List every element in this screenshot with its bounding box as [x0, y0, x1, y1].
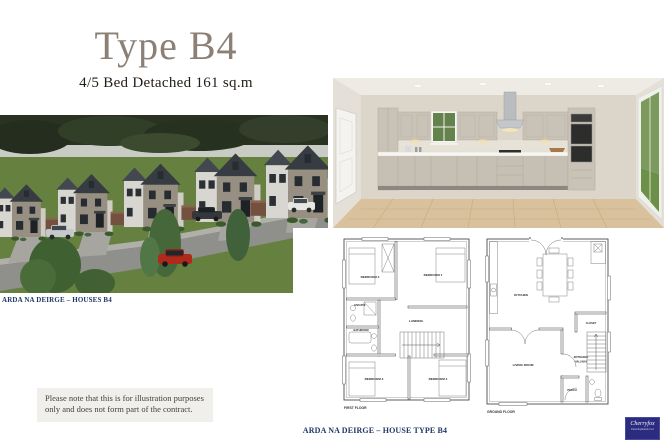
disclaimer-line1: Please note that this is for illustratio…	[45, 393, 213, 404]
room-label-entrance: ENTRANCE	[574, 355, 589, 359]
brochure-page: Type B4 4/5 Bed Detached 161 sq.m	[0, 0, 668, 445]
room-label-bedroom2: BEDROOM 2	[361, 275, 380, 279]
room-label-hallway: HALLWAY	[575, 360, 588, 364]
header: Type B4 4/5 Bed Detached 161 sq.m	[0, 24, 332, 92]
disclaimer-line2: only and does not form part of the contr…	[45, 404, 213, 415]
left-door	[336, 108, 356, 204]
room-label-kitchen: KITCHEN	[514, 293, 529, 297]
room-label-living-room: LIVING ROOM	[513, 363, 534, 367]
houses-render-caption: ARDA NA DEIRGE – HOUSES B4	[2, 296, 112, 304]
room-label-bathroom: BATHROOM	[353, 328, 368, 332]
developer-logo: Cherryfox Developments Ltd	[625, 417, 660, 440]
first-floor-plan: BEDROOM 2 BEDROOM 1 ENSUITE BATHROOM LAN…	[340, 236, 473, 412]
first-floor-caption: FIRST FLOOR	[344, 406, 367, 410]
room-label-bedroom1: BEDROOM 1	[424, 273, 443, 277]
page-subtitle: 4/5 Bed Detached 161 sq.m	[0, 75, 332, 92]
wood-floor	[333, 199, 664, 228]
room-label-bedroom4: BEDROOM 4	[429, 377, 448, 381]
room-label-landing: LANDING	[409, 319, 424, 323]
room-label-closet: CLOSET	[586, 321, 597, 325]
kitchen-window	[430, 111, 458, 145]
room-label-bedroom3: BEDROOM 3	[365, 377, 384, 381]
oven-column	[568, 108, 595, 190]
page-title: Type B4	[0, 24, 332, 68]
hob	[499, 150, 521, 153]
footer-caption: ARDA NA DEIRGE – HOUSE TYPE B4	[270, 426, 480, 435]
logo-tagline: Developments Ltd	[626, 428, 659, 432]
kitchen-render-illustration	[333, 78, 664, 228]
room-label-porch: PORCH	[567, 388, 576, 392]
houses-render-illustration	[0, 115, 328, 293]
ceiling	[333, 78, 664, 95]
ground-floor-plan: KITCHEN CLOSET LIVING ROOM ENTRANCE HALL…	[483, 236, 613, 416]
disclaimer-note: Please note that this is for illustratio…	[37, 388, 213, 422]
image-cutout	[293, 228, 328, 293]
ground-floor-caption: GROUND FLOOR	[487, 410, 515, 414]
room-label-ensuite: ENSUITE	[354, 303, 366, 307]
garden-door	[638, 86, 662, 220]
